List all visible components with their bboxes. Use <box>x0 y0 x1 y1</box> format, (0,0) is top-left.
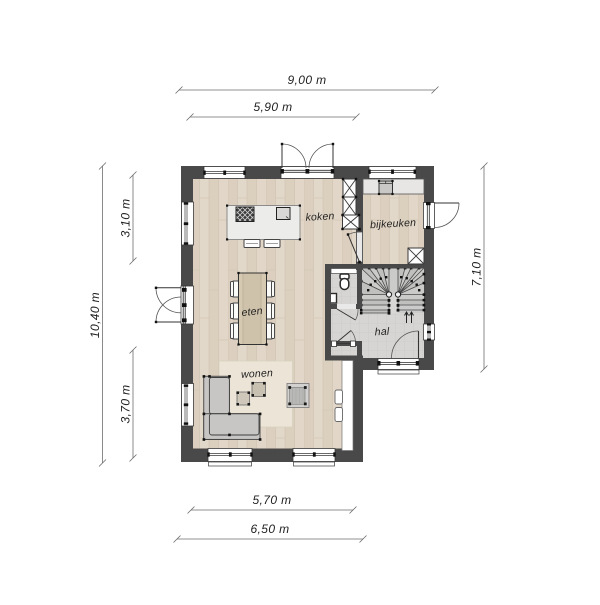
svg-text:eten: eten <box>241 305 263 319</box>
svg-text:5,90 m: 5,90 m <box>253 100 292 114</box>
svg-text:koken: koken <box>305 210 335 224</box>
svg-text:3,10 m: 3,10 m <box>119 198 133 237</box>
svg-text:6,50 m: 6,50 m <box>250 522 289 536</box>
svg-text:bijkeuken: bijkeuken <box>370 217 417 231</box>
svg-text:7,10 m: 7,10 m <box>470 247 484 286</box>
svg-text:10,40 m: 10,40 m <box>88 292 102 338</box>
svg-text:9,00 m: 9,00 m <box>287 73 326 87</box>
svg-text:5,70 m: 5,70 m <box>252 493 291 507</box>
svg-text:hal: hal <box>374 326 390 339</box>
svg-text:wonen: wonen <box>241 367 274 381</box>
svg-text:3,70 m: 3,70 m <box>119 384 133 423</box>
